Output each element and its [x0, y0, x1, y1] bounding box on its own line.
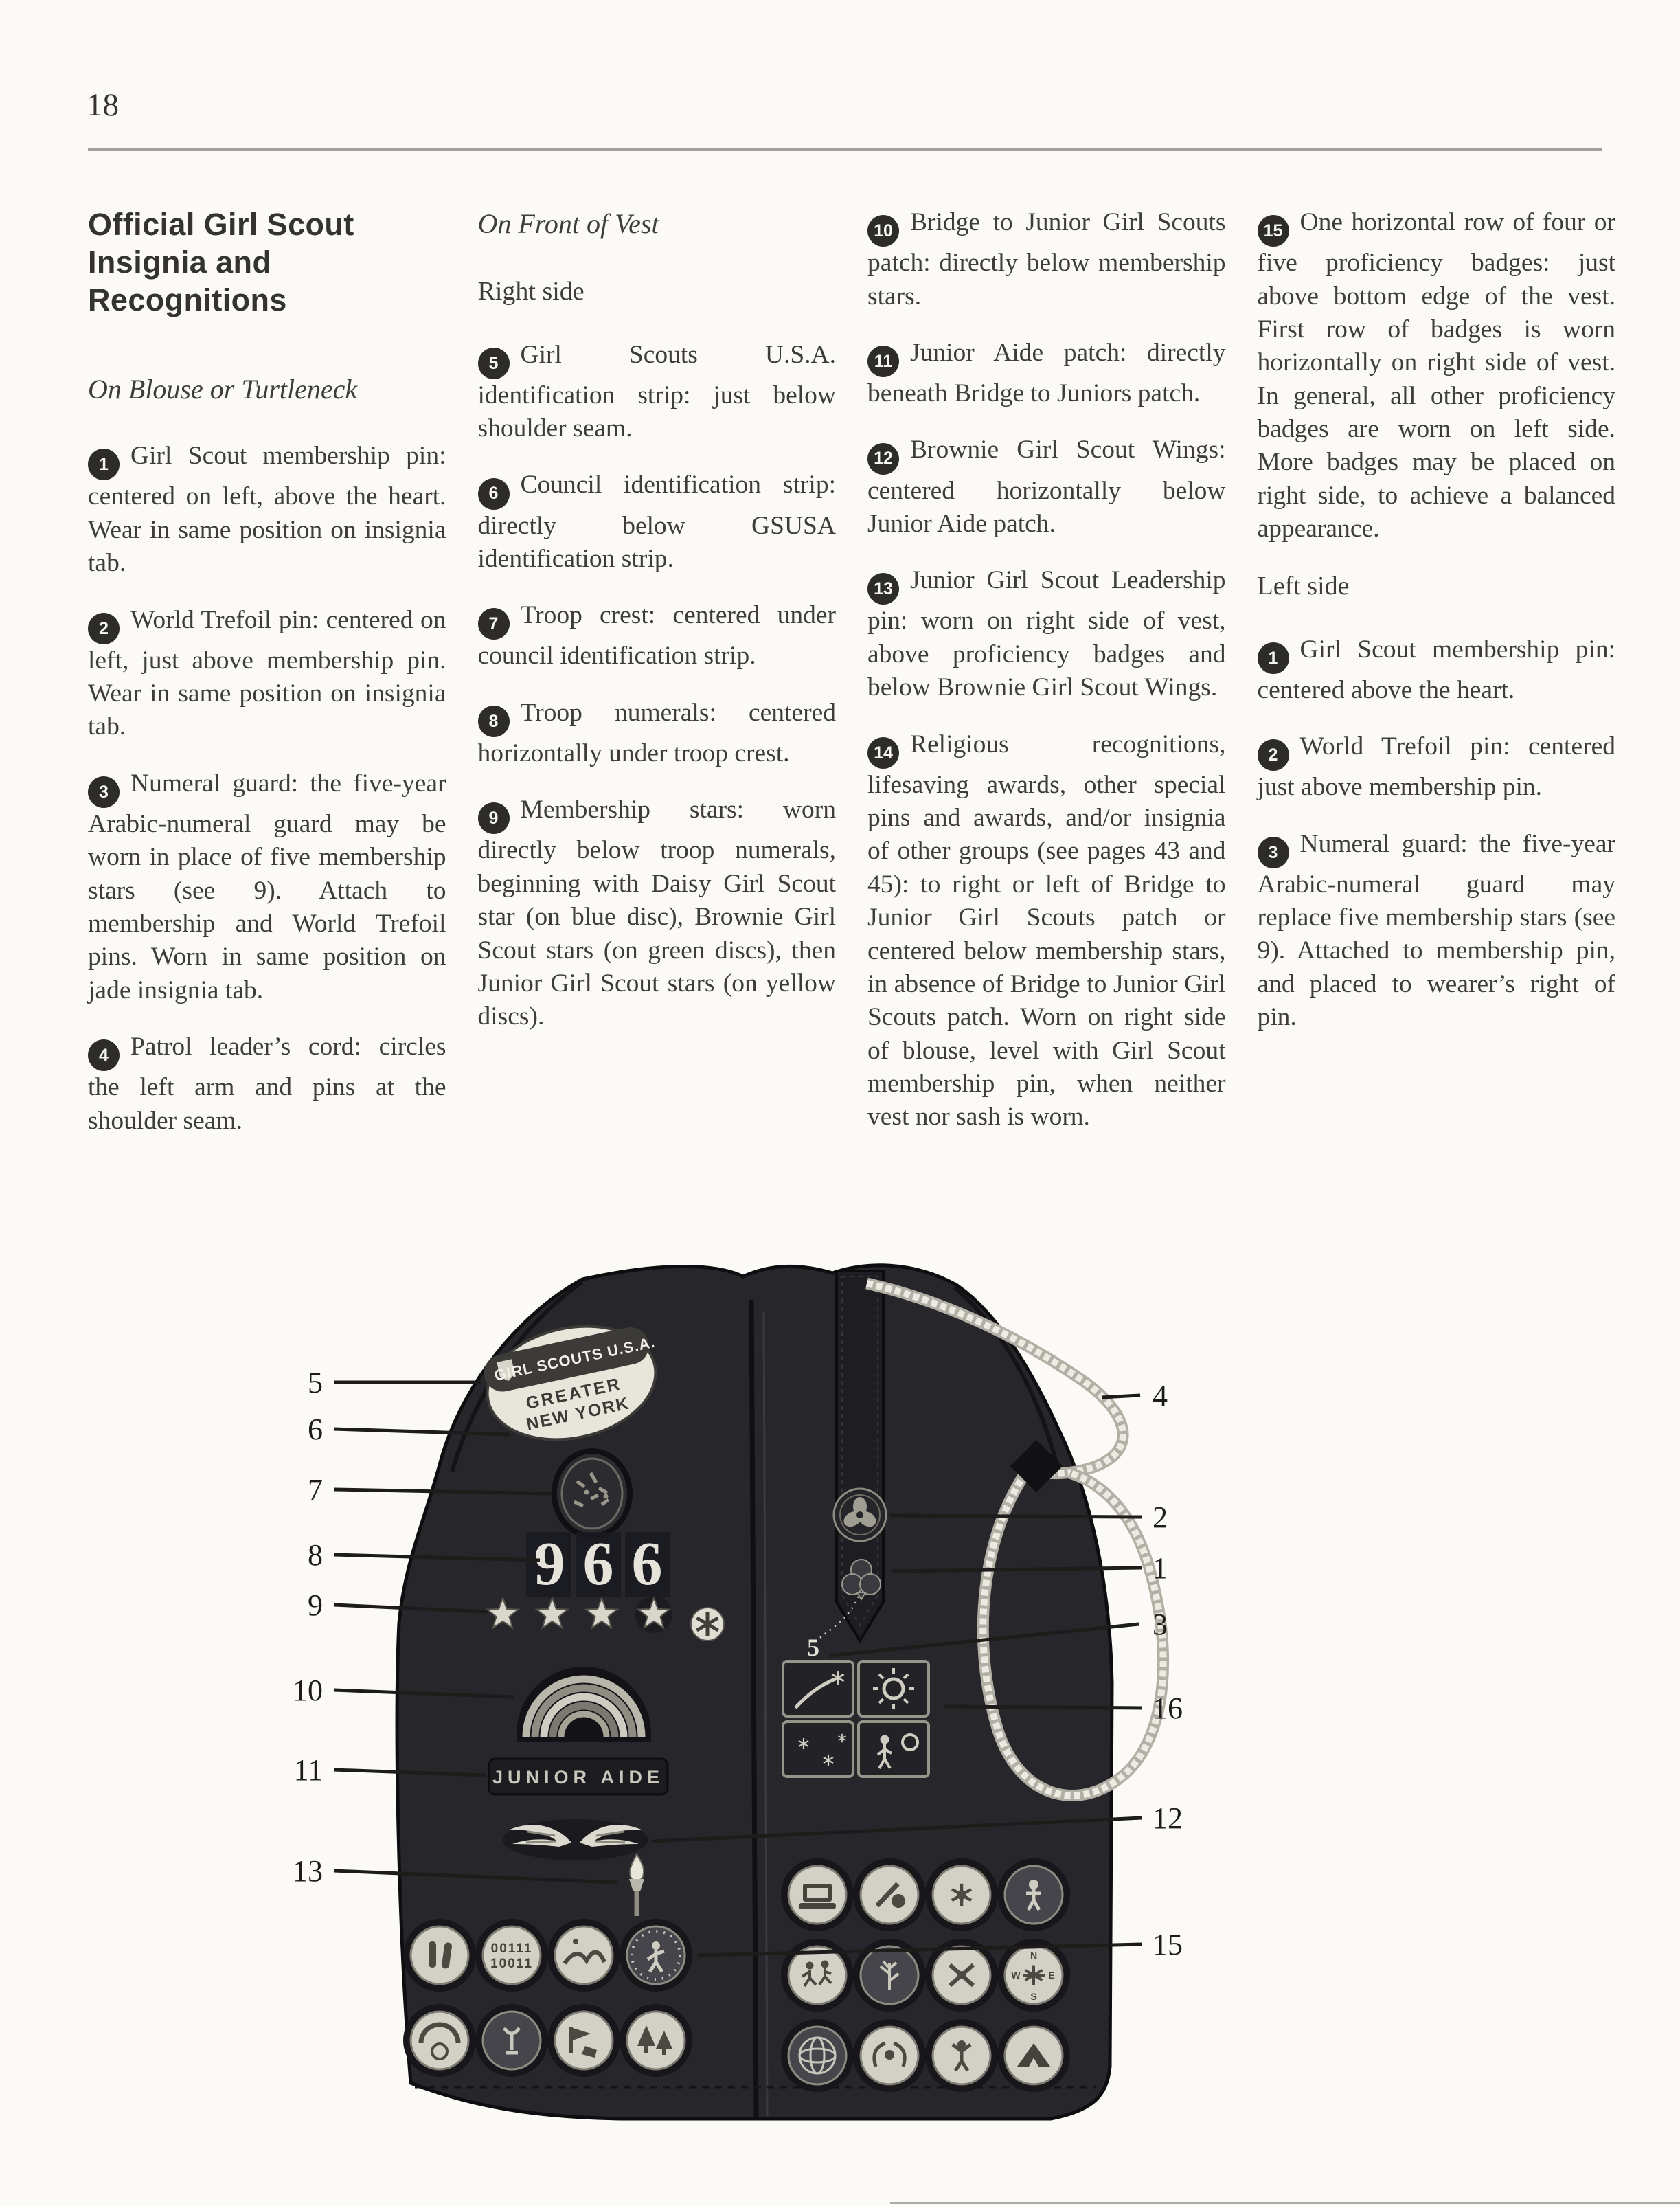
- svg-text:10011: 10011: [490, 1957, 533, 1971]
- badge-flag-boot: [547, 2004, 620, 2077]
- item-number-badge: 1: [1258, 642, 1289, 674]
- item-text: Girl Scouts U.S.A. identification strip:…: [478, 341, 837, 443]
- badge-person: [997, 1858, 1070, 1931]
- badge-trees: [620, 2004, 692, 2077]
- item-number-badge: 5: [478, 348, 510, 379]
- svg-text:S: S: [1030, 1991, 1036, 2002]
- item-number-badge: 10: [867, 215, 899, 247]
- svg-text:N: N: [1030, 1950, 1037, 1961]
- callout-line: [944, 1707, 1142, 1708]
- header-rule: [88, 148, 1602, 151]
- item-number-badge: 13: [867, 573, 899, 605]
- item-number-badge: 3: [88, 776, 120, 808]
- item-text: Brownie Girl Scout Wings: centered horiz…: [867, 436, 1226, 538]
- badge-computer: [781, 1858, 854, 1931]
- svg-text:00111: 00111: [491, 1941, 533, 1956]
- junior-aide-text: JUNIOR AIDE: [492, 1767, 664, 1788]
- callout-label: 9: [308, 1588, 323, 1622]
- callout-label: 16: [1153, 1691, 1183, 1725]
- callout-label: 7: [308, 1473, 323, 1507]
- list-item: 1Girl Scout membership pin: centered abo…: [1258, 633, 1616, 708]
- item-number-badge: 2: [1258, 739, 1289, 771]
- item-text: Numeral guard: the five-year Arabic-nume…: [88, 769, 446, 1004]
- badge-rainbow-globe: [403, 2004, 476, 2077]
- callout-label: 4: [1153, 1379, 1168, 1412]
- callout-line: [1102, 1395, 1140, 1397]
- badge-insect: [925, 1858, 998, 1931]
- badge-boots: [403, 1919, 476, 1992]
- list-item: 5Girl Scouts U.S.A. identification strip…: [478, 339, 837, 446]
- badge-dancer: [620, 1919, 692, 1992]
- item-text: Numeral guard: the five-year Arabic-nume…: [1258, 830, 1616, 1032]
- brownie-wings-patch: [503, 1819, 648, 1860]
- list-item: 13Junior Girl Scout Leadership pin: worn…: [867, 564, 1226, 704]
- article-title: Official Girl Scout Insignia and Recogni…: [88, 206, 446, 319]
- list-item: 12Brownie Girl Scout Wings: centered hor…: [867, 434, 1226, 541]
- item-text: Patrol leader’s cord: circles the left a…: [88, 1033, 446, 1135]
- item-number-badge: 1: [88, 449, 120, 480]
- sign-world-patch: [859, 1722, 929, 1777]
- junior-aide-patch: JUNIOR AIDE: [489, 1759, 668, 1794]
- item-text: World Trefoil pin: centered on left, jus…: [88, 606, 446, 741]
- troop-numerals-text: 966: [534, 1530, 681, 1598]
- list-item: 14Religious recognitions, lifesaving awa…: [867, 728, 1226, 1134]
- callout-label: 10: [293, 1674, 323, 1707]
- list-item: 8Troop numerals: centered horizontally u…: [478, 697, 837, 771]
- list-item: 15One horizontal row of four or five pro…: [1258, 206, 1616, 546]
- left-side-label: Left side: [1258, 570, 1616, 603]
- sign-satellite-patch: [783, 1722, 853, 1777]
- column-4: 15One horizontal row of four or five pro…: [1258, 206, 1616, 1161]
- item-text: Girl Scout membership pin: centered on l…: [88, 442, 446, 577]
- badge-wreath: [853, 2019, 926, 2092]
- item-text: Troop numerals: centered horizontally un…: [478, 699, 837, 767]
- item-text: Troop crest: centered under council iden…: [478, 601, 837, 670]
- troop-numerals-patch: 966: [526, 1530, 681, 1598]
- callout-label: 12: [1153, 1801, 1183, 1835]
- item-text: Junior Aide patch: directly beneath Brid…: [867, 339, 1226, 407]
- badge-runners: [781, 1939, 854, 2012]
- list-item: 10Bridge to Junior Girl Scouts patch: di…: [867, 206, 1226, 313]
- callout-line: [889, 1516, 1142, 1517]
- list-item: 3Numeral guard: the five-year Arabic-num…: [88, 767, 446, 1007]
- list-item: 2World Trefoil pin: centered just above …: [1258, 730, 1616, 804]
- callout-label: 11: [294, 1753, 323, 1787]
- item-number-badge: 11: [867, 346, 899, 377]
- text-columns: Official Girl Scout Insignia and Recogni…: [88, 206, 1615, 1161]
- item-text: Junior Girl Scout Leadership pin: worn o…: [867, 566, 1226, 701]
- list-item: 1Girl Scout membership pin: centered on …: [88, 440, 446, 580]
- subheading-blouse: On Blouse or Turtleneck: [88, 372, 446, 407]
- book-page: 18 Official Girl Scout Insignia and Reco…: [0, 0, 1680, 2206]
- column-2: On Front of Vest Right side 5Girl Scouts…: [478, 206, 837, 1161]
- proficiency-badges-right: N E S W: [781, 1858, 1070, 2092]
- list-item: 11Junior Aide patch: directly beneath Br…: [867, 337, 1226, 411]
- list-item: 4Patrol leader’s cord: circles the left …: [88, 1031, 446, 1138]
- list-item: 9Membership stars: worn directly below t…: [478, 794, 837, 1033]
- item-number-badge: 12: [867, 443, 899, 475]
- column-3: 10Bridge to Junior Girl Scouts patch: di…: [867, 206, 1226, 1161]
- svg-text:W: W: [1011, 1970, 1021, 1981]
- item-text: Bridge to Junior Girl Scouts patch: dire…: [867, 208, 1226, 311]
- callout-label: 2: [1153, 1500, 1168, 1534]
- callout-label: 8: [308, 1538, 323, 1572]
- badge-tent: [997, 2019, 1070, 2092]
- item-text: Membership stars: worn directly below tr…: [478, 796, 837, 1031]
- world-trefoil-pin: [834, 1489, 886, 1541]
- badge-binary: 00111 10011: [475, 1919, 548, 1992]
- list-item: 6Council identification strip: directly …: [478, 469, 837, 576]
- scan-artifact-line: [890, 2202, 1680, 2204]
- callout-label: 13: [293, 1854, 323, 1888]
- item-text: Religious recognitions, lifesaving award…: [867, 730, 1226, 1132]
- badge-outdoors: [547, 1919, 620, 1992]
- badge-compass: N E S W: [997, 1939, 1070, 2012]
- item-text: One horizontal row of four or five profi…: [1258, 208, 1616, 543]
- page-number: 18: [87, 87, 119, 124]
- badge-art: [853, 1858, 926, 1931]
- item-number-badge: 3: [1258, 837, 1289, 868]
- item-number-badge: 7: [478, 608, 510, 640]
- list-item: 2World Trefoil pin: centered on left, ju…: [88, 604, 446, 744]
- item-number-badge: 2: [88, 613, 120, 644]
- vest-photo-figure: GIRL SCOUTS U.S.A. GREATER NEW YORK 966: [0, 1202, 1680, 2206]
- svg-text:E: E: [1048, 1970, 1054, 1981]
- item-number-badge: 4: [88, 1039, 120, 1071]
- callout-label: 6: [308, 1412, 323, 1446]
- item-text: World Trefoil pin: centered just above m…: [1258, 732, 1616, 801]
- badge-globe: [781, 2019, 854, 2092]
- badge-trophy: [475, 2004, 548, 2077]
- subheading-vest: On Front of Vest: [478, 206, 837, 242]
- item-text: Council identification strip: directly b…: [478, 471, 837, 573]
- callout-label: 1: [1153, 1551, 1168, 1585]
- item-number-badge: 8: [478, 706, 510, 737]
- column-1: Official Girl Scout Insignia and Recogni…: [88, 206, 446, 1161]
- badge-gymnast: [925, 2019, 998, 2092]
- item-number-badge: 9: [478, 802, 510, 834]
- item-number-badge: 15: [1258, 215, 1289, 247]
- right-side-label: Right side: [478, 275, 837, 308]
- numeral-guard-text: 5: [807, 1634, 819, 1661]
- item-number-badge: 14: [867, 737, 899, 769]
- list-item: 3Numeral guard: the five-year Arabic-num…: [1258, 828, 1616, 1035]
- item-text: Girl Scout membership pin: centered abov…: [1258, 635, 1616, 704]
- callout-label: 15: [1153, 1928, 1183, 1961]
- list-item: 7Troop crest: centered under council ide…: [478, 599, 837, 673]
- troop-crest-patch: [554, 1451, 630, 1536]
- item-number-badge: 6: [478, 478, 510, 510]
- callout-label: 3: [1153, 1608, 1168, 1641]
- callout-label: 5: [308, 1366, 323, 1399]
